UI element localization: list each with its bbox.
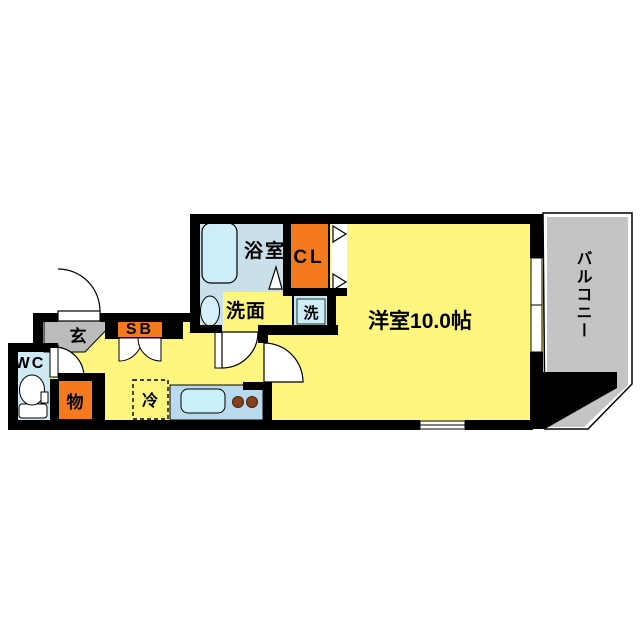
wall-bottom-left	[8, 420, 420, 430]
wc-label: WC	[15, 355, 46, 372]
washing-machine-label: 洗	[303, 304, 318, 322]
main-room-label: 洋室10.0帖	[368, 309, 472, 333]
wall-washer-bottom	[258, 325, 338, 335]
wall-step-left	[33, 313, 43, 347]
wall-door-stub	[258, 325, 268, 343]
shoe-box-label: SB	[126, 321, 154, 338]
toilet-handle-icon	[41, 392, 48, 403]
balcony-label: バルコニー	[574, 250, 593, 340]
washroom-label: 洗面	[226, 299, 266, 322]
wall-kitchen-divider	[263, 382, 272, 420]
stove-burner-icon	[233, 397, 244, 408]
wall-shoebox-right	[163, 313, 183, 339]
bathtub-icon	[202, 223, 237, 283]
floor-plan-drawing: 浴室 CL 洗面 洗 玄 WC SB 物 冷 洋室10.0帖 バルコニー	[0, 0, 640, 640]
wall-balcony-top-stub	[530, 214, 543, 258]
wall-balcony-bottom-stub	[530, 352, 543, 374]
closet-label: CL	[293, 247, 324, 268]
entrance-label: 玄	[70, 326, 87, 346]
wc-door-leaf	[50, 345, 58, 377]
wall-top	[193, 214, 543, 224]
washroom-door-leaf	[215, 332, 222, 368]
entry-door-leaf	[58, 311, 100, 321]
wall-shoebox-left	[105, 313, 117, 339]
wall-washroom-bottom	[190, 325, 222, 333]
storage-label: 物	[67, 392, 84, 412]
wall-storage-right	[93, 373, 105, 420]
sink-icon	[201, 296, 220, 326]
entry-door-swing-arc	[58, 269, 100, 311]
bathroom-label: 浴室	[244, 239, 286, 262]
wall-wc-right-lower	[50, 379, 58, 420]
wall-kitchen-stub	[243, 382, 264, 390]
refrigerator-label: 冷	[142, 391, 158, 410]
wall-washer-right	[327, 290, 336, 327]
wall-wc-right-upper	[50, 343, 58, 348]
stove-burner-icon	[247, 397, 258, 408]
toilet-tank-icon	[19, 404, 47, 418]
floor-plan-canvas: 浴室 CL 洗面 洗 玄 WC SB 物 冷 洋室10.0帖 バルコニー	[0, 0, 640, 640]
kitchen-sink-icon	[181, 389, 225, 413]
wall-closet-bottom	[283, 288, 347, 296]
